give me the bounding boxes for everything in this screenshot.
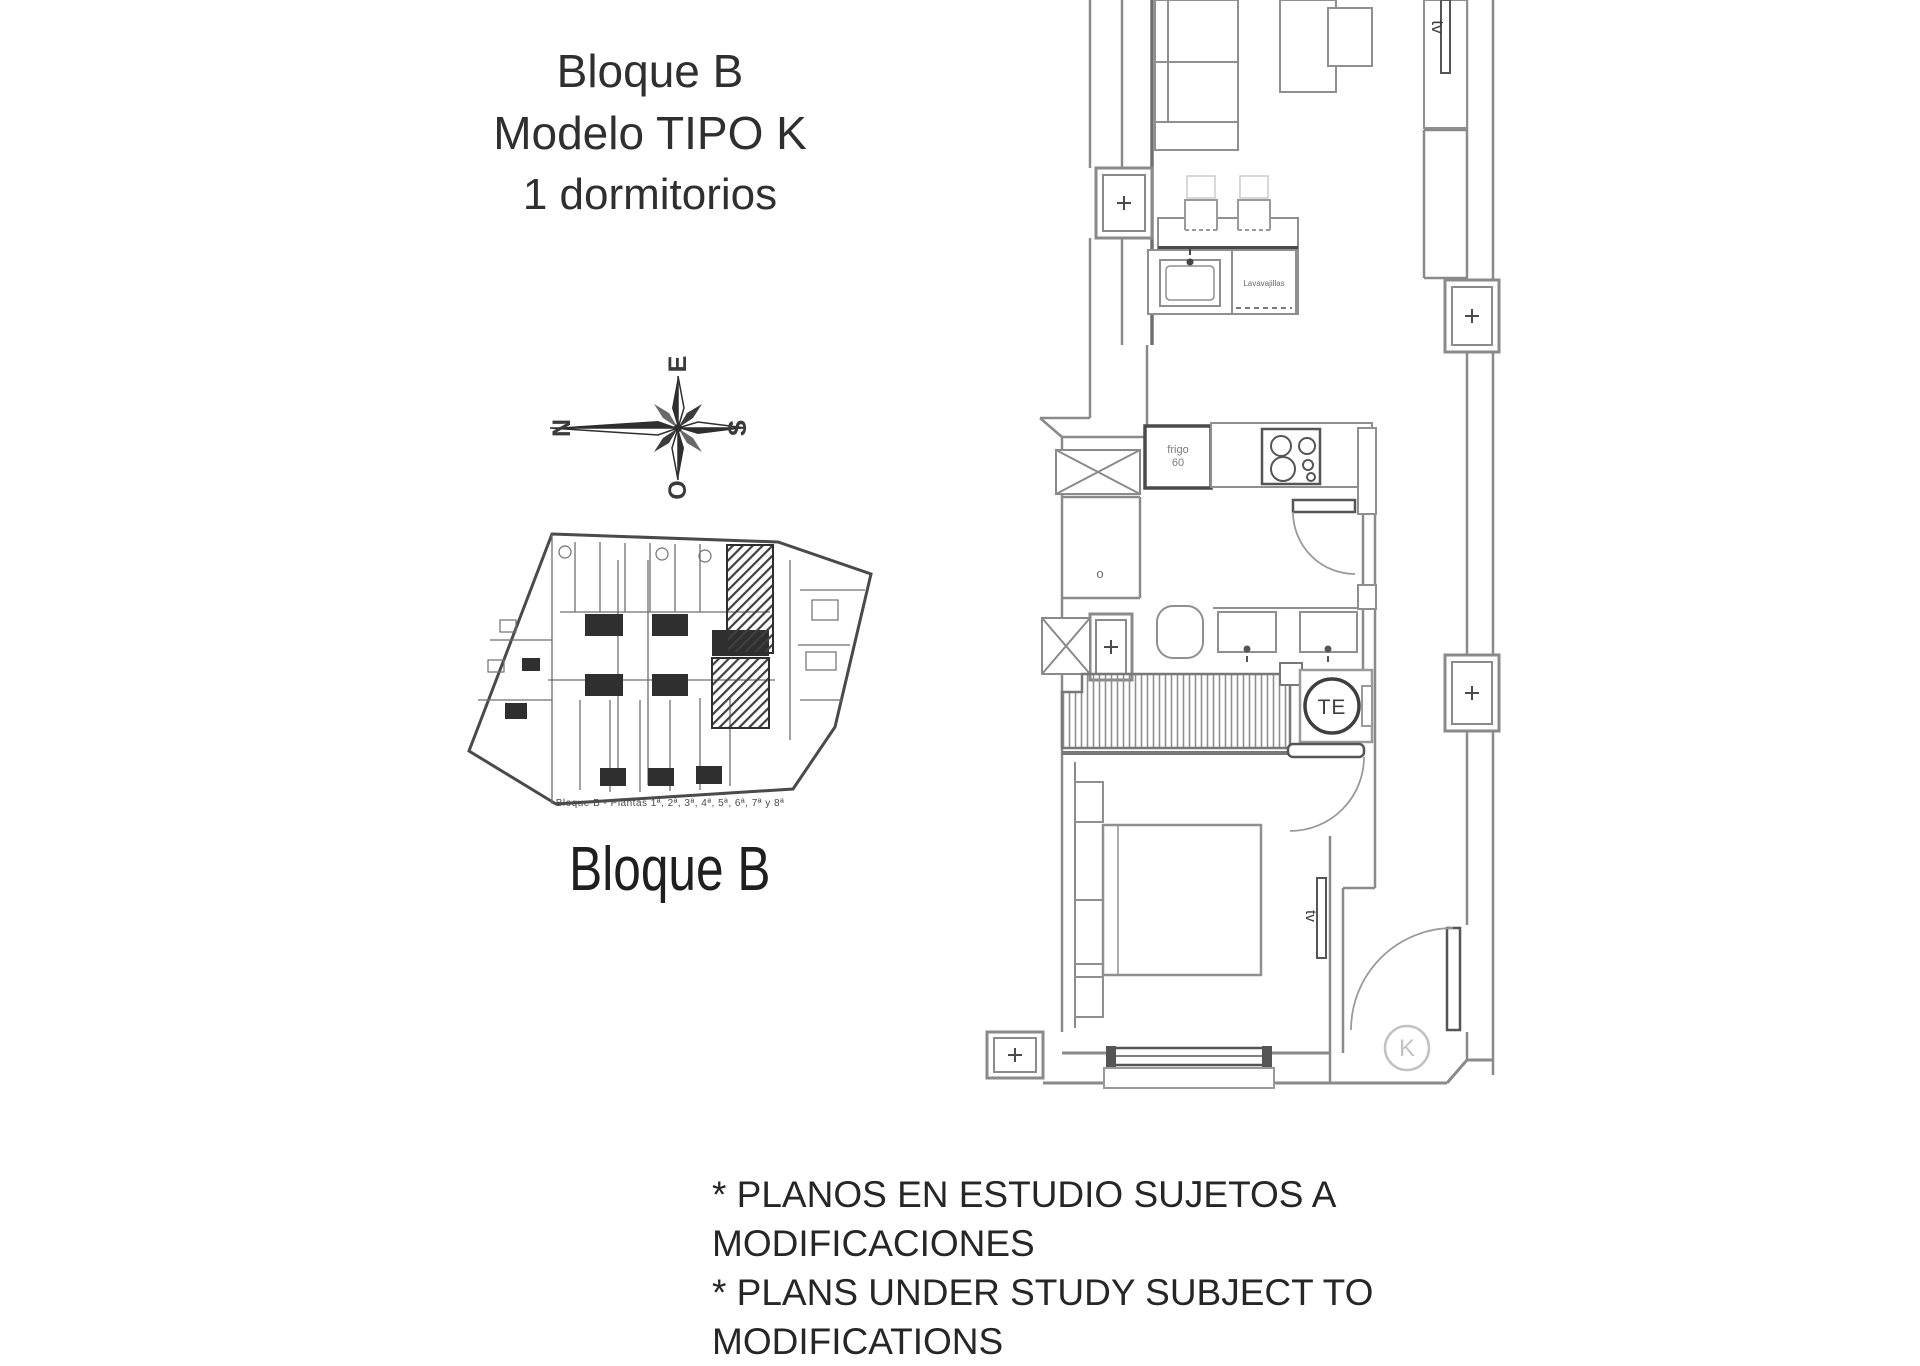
disclaimer-en: * PLANS UNDER STUDY SUBJECT TO MODIFICAT… <box>712 1268 1612 1366</box>
hall-door-swing <box>1293 512 1355 574</box>
duct-shaft-bath <box>1042 618 1090 674</box>
vanity-sinks <box>1218 612 1357 662</box>
bathroom-door-leaf <box>1288 744 1364 757</box>
bathroom-door <box>1288 744 1364 831</box>
shower-area <box>1062 674 1290 748</box>
water-heater: TE <box>1300 670 1372 742</box>
bedroom-window <box>1104 1046 1274 1088</box>
sofa <box>1155 0 1238 150</box>
dishwasher-label: Lavavajillas <box>1243 279 1284 288</box>
highlighted-unit-lower <box>712 658 769 728</box>
window-sill <box>1104 1068 1274 1088</box>
disclaimer-block: * PLANOS EN ESTUDIO SUJETOS A MODIFICACI… <box>712 1170 1612 1366</box>
column-marker-right-upper <box>1445 280 1499 352</box>
entrance: K <box>1351 928 1460 1070</box>
bedroom-count: 1 dormitorios <box>370 164 930 226</box>
bathroom-door-swing <box>1290 757 1364 831</box>
kitchen-pillar <box>1358 428 1376 514</box>
tv-screen-living <box>1441 0 1450 73</box>
highlighted-unit-upper <box>727 545 773 653</box>
entrance-door-swing <box>1351 928 1453 1030</box>
duct-shaft-kitchen <box>1056 450 1140 494</box>
bed <box>1103 825 1261 975</box>
compass-label-n: N <box>548 419 576 437</box>
disclaimer-es: * PLANOS EN ESTUDIO SUJETOS A MODIFICACI… <box>712 1170 1612 1268</box>
apartment-floor-plan: tv Lavavajillas <box>980 0 1520 1100</box>
toilet <box>1157 606 1203 658</box>
fridge: frigo 60 <box>1145 426 1211 488</box>
fridge-size-label: 60 <box>1172 457 1184 469</box>
armchair-table <box>1280 0 1372 92</box>
compass-label-o: O <box>664 480 692 499</box>
column-marker-left-middle <box>1090 614 1132 680</box>
bath-door-jamb <box>1358 585 1376 609</box>
tv-label-living: tv <box>1428 20 1447 34</box>
kitchen-island <box>1158 176 1298 248</box>
tv-unit-bedroom: tv <box>1302 878 1326 958</box>
kitchen-sink <box>1166 266 1214 300</box>
dishwasher: Lavavajillas <box>1232 250 1296 314</box>
entrance-door-leaf <box>1447 928 1460 1030</box>
unit-type-badge: K <box>1385 1026 1429 1070</box>
model-name: Modelo TIPO K <box>370 102 930 164</box>
column-marker-right-middle <box>1445 655 1499 731</box>
plan-title-block: Bloque B Modelo TIPO K 1 dormitorios <box>370 40 930 226</box>
compass-label-e: E <box>664 356 692 373</box>
block-name: Bloque B <box>370 40 930 102</box>
kitchen: Lavavajillas frigo 60 <box>1145 176 1376 514</box>
fridge-label: frigo <box>1167 444 1188 456</box>
water-heater-label: TE <box>1318 696 1347 719</box>
block-site-plan <box>455 520 885 810</box>
nightstands <box>1075 782 1103 1017</box>
compass-rose-icon: N E S O <box>540 350 810 510</box>
block-plan-caption: Bloque B - Plantas 1ª, 2ª, 3ª, 4ª, 5ª, 6… <box>455 798 885 809</box>
unit-type-letter: K <box>1399 1035 1415 1062</box>
block-plan-title: Bloque B <box>455 834 885 905</box>
living-room: tv <box>1155 0 1467 150</box>
kitchen-tap <box>1187 259 1194 266</box>
tv-label-bedroom: tv <box>1302 910 1319 922</box>
laundry-symbol: o <box>1096 566 1103 581</box>
shower-drain-box <box>1280 663 1302 685</box>
sink-counter: Lavavajillas <box>1148 248 1298 314</box>
tv-unit-living: tv <box>1424 0 1467 128</box>
compass-label-s: S <box>724 420 752 437</box>
bedroom: tv <box>1075 782 1326 1088</box>
column-marker-bottom-left <box>987 1032 1043 1078</box>
hall-door-leaf <box>1293 500 1355 512</box>
column-marker-left-top <box>1096 168 1152 238</box>
hall-door <box>1293 500 1355 574</box>
laundry-nook: o <box>1096 566 1103 581</box>
compass-center <box>674 424 682 432</box>
